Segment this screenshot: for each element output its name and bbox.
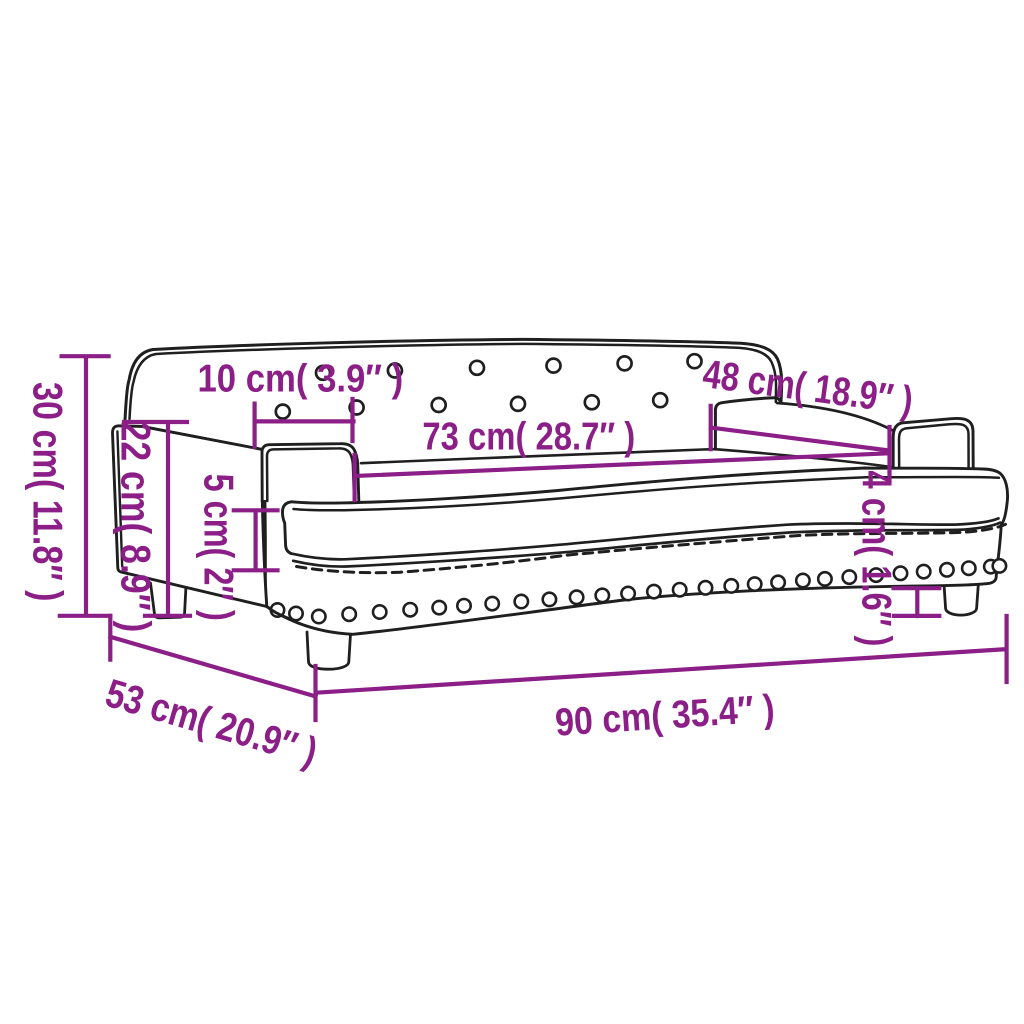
svg-text:5 cm( 2″ ): 5 cm( 2″ ) (196, 474, 243, 621)
svg-text:10 cm( 3.9″ ): 10 cm( 3.9″ ) (197, 357, 403, 400)
svg-text:4 cm( 1.6″ ): 4 cm( 1.6″ ) (854, 471, 901, 647)
svg-text:73 cm( 28.7″ ): 73 cm( 28.7″ ) (422, 414, 635, 458)
svg-text:22 cm( 8.9″ ): 22 cm( 8.9″ ) (112, 422, 158, 633)
svg-text:30 cm( 11.8″ ): 30 cm( 11.8″ ) (24, 382, 71, 602)
